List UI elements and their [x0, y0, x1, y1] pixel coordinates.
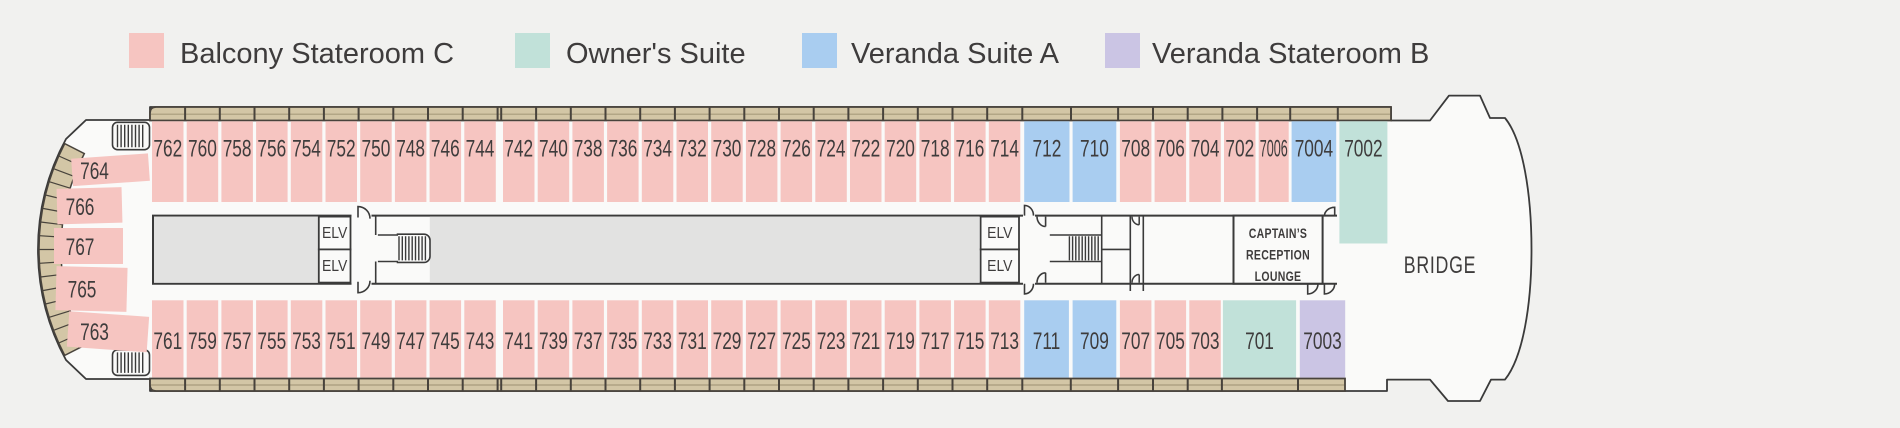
svg-text:7004: 7004	[1295, 136, 1334, 162]
svg-text:763: 763	[80, 319, 109, 345]
svg-text:704: 704	[1191, 136, 1220, 162]
svg-text:CAPTAIN’S: CAPTAIN’S	[1249, 226, 1307, 242]
svg-text:746: 746	[431, 136, 460, 162]
svg-text:725: 725	[782, 328, 811, 354]
svg-text:7006: 7006	[1260, 136, 1288, 162]
svg-text:737: 737	[574, 328, 603, 354]
svg-text:756: 756	[257, 136, 286, 162]
svg-text:718: 718	[921, 136, 950, 162]
svg-text:713: 713	[990, 328, 1019, 354]
svg-text:LOUNGE: LOUNGE	[1255, 268, 1302, 284]
svg-text:753: 753	[292, 328, 321, 354]
svg-text:Balcony Stateroom C: Balcony Stateroom C	[180, 38, 454, 70]
svg-text:762: 762	[153, 136, 182, 162]
svg-text:739: 739	[539, 328, 568, 354]
svg-text:742: 742	[504, 136, 533, 162]
svg-text:701: 701	[1245, 328, 1274, 354]
svg-text:717: 717	[921, 328, 950, 354]
svg-text:728: 728	[747, 136, 776, 162]
svg-text:ELV: ELV	[987, 259, 1012, 276]
svg-text:759: 759	[188, 328, 217, 354]
svg-text:730: 730	[713, 136, 742, 162]
svg-text:703: 703	[1191, 328, 1220, 354]
svg-text:726: 726	[782, 136, 811, 162]
svg-text:761: 761	[153, 328, 182, 354]
svg-text:740: 740	[539, 136, 568, 162]
svg-text:754: 754	[292, 136, 321, 162]
svg-text:729: 729	[713, 328, 742, 354]
svg-text:752: 752	[327, 136, 356, 162]
svg-text:758: 758	[223, 136, 252, 162]
svg-text:RECEPTION: RECEPTION	[1246, 247, 1310, 263]
svg-text:723: 723	[817, 328, 846, 354]
svg-text:7003: 7003	[1303, 328, 1341, 354]
svg-text:724: 724	[817, 136, 846, 162]
svg-text:743: 743	[466, 328, 495, 354]
svg-text:ELV: ELV	[322, 259, 347, 276]
svg-text:709: 709	[1080, 328, 1109, 354]
svg-text:760: 760	[188, 136, 217, 162]
svg-text:720: 720	[886, 136, 915, 162]
svg-text:755: 755	[257, 328, 286, 354]
svg-text:716: 716	[955, 136, 984, 162]
svg-text:Owner's Suite: Owner's Suite	[566, 38, 746, 70]
svg-text:735: 735	[608, 328, 637, 354]
svg-text:745: 745	[431, 328, 460, 354]
svg-text:734: 734	[643, 136, 672, 162]
svg-text:ELV: ELV	[322, 226, 347, 243]
svg-text:765: 765	[68, 277, 97, 303]
svg-text:733: 733	[643, 328, 672, 354]
svg-text:Veranda Suite A: Veranda Suite A	[851, 38, 1060, 70]
svg-text:766: 766	[66, 194, 95, 220]
svg-text:707: 707	[1121, 328, 1150, 354]
svg-text:738: 738	[574, 136, 603, 162]
svg-text:706: 706	[1156, 136, 1185, 162]
svg-text:705: 705	[1156, 328, 1185, 354]
svg-text:702: 702	[1225, 136, 1254, 162]
svg-text:744: 744	[466, 136, 495, 162]
svg-text:715: 715	[955, 328, 984, 354]
svg-text:719: 719	[886, 328, 915, 354]
svg-text:ELV: ELV	[987, 226, 1012, 243]
svg-text:722: 722	[851, 136, 880, 162]
svg-text:749: 749	[361, 328, 390, 354]
svg-text:BRIDGE: BRIDGE	[1404, 253, 1477, 279]
svg-text:Veranda Stateroom B: Veranda Stateroom B	[1152, 38, 1429, 70]
svg-text:750: 750	[361, 136, 390, 162]
svg-text:747: 747	[396, 328, 425, 354]
svg-text:767: 767	[66, 234, 95, 260]
svg-text:721: 721	[851, 328, 880, 354]
svg-text:727: 727	[747, 328, 776, 354]
svg-text:711: 711	[1033, 328, 1061, 354]
svg-text:731: 731	[678, 328, 707, 354]
svg-text:710: 710	[1080, 136, 1109, 162]
svg-text:748: 748	[396, 136, 425, 162]
svg-text:708: 708	[1121, 136, 1150, 162]
svg-text:741: 741	[504, 328, 533, 354]
svg-text:714: 714	[990, 136, 1019, 162]
svg-text:732: 732	[678, 136, 707, 162]
svg-text:757: 757	[223, 328, 252, 354]
svg-text:751: 751	[327, 328, 356, 354]
svg-text:764: 764	[80, 158, 109, 184]
svg-text:736: 736	[608, 136, 637, 162]
svg-text:712: 712	[1032, 136, 1061, 162]
svg-text:7002: 7002	[1344, 136, 1382, 162]
